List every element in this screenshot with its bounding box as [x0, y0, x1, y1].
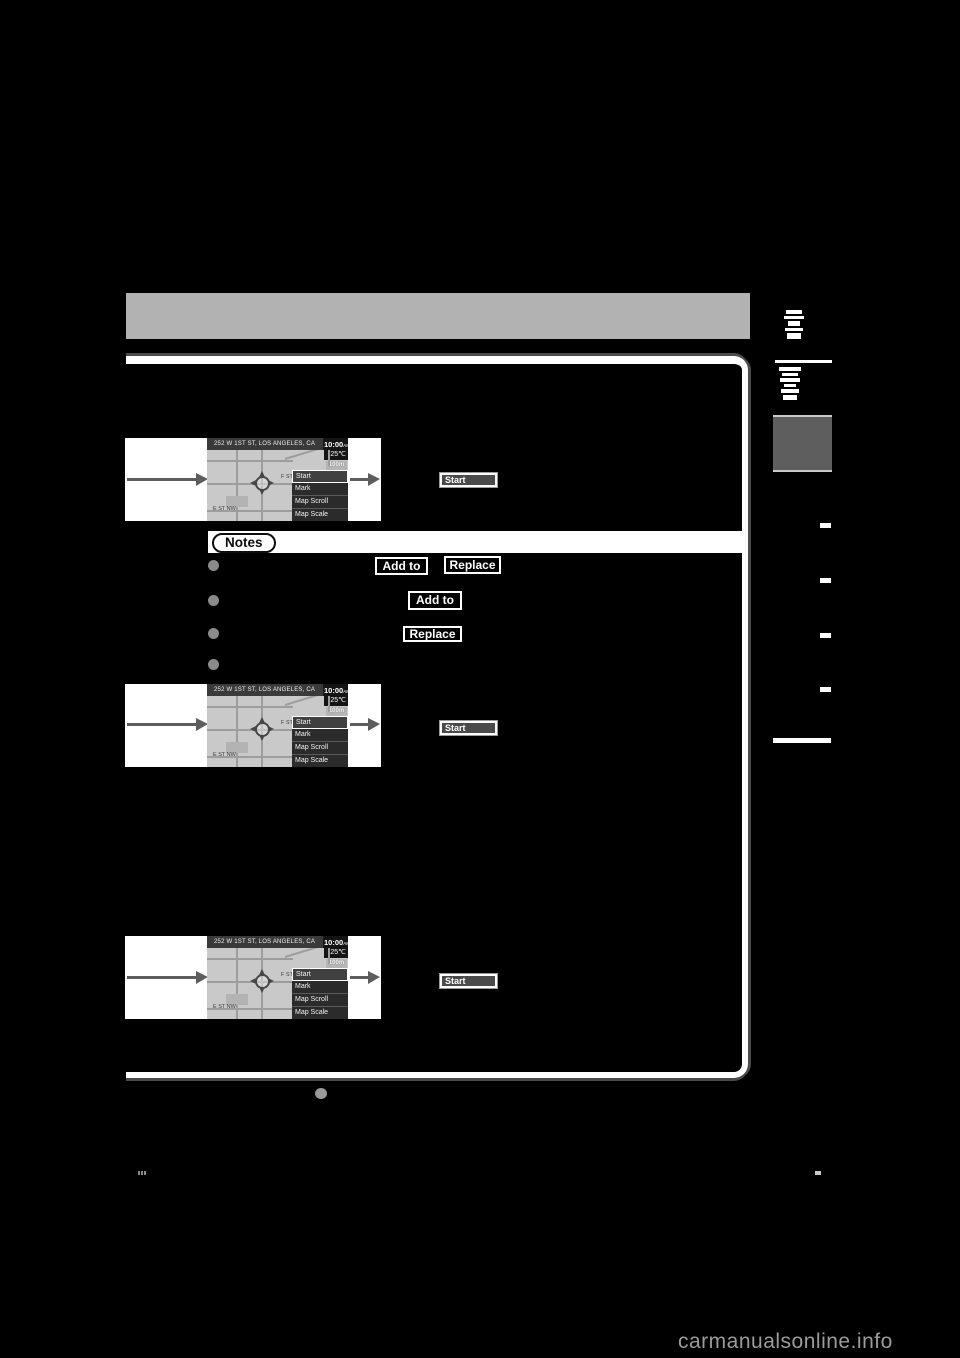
bullet-icon [208, 628, 219, 639]
map-area: F ST E ST NW Start Mark Map Scroll Map S… [207, 948, 348, 1019]
page-header-bar [126, 293, 750, 339]
street-label: E ST NW [213, 1004, 236, 1010]
map-clock: 10:00AM [323, 684, 348, 696]
map-address-bar: 252 W 1ST ST, LOS ANGELES, CA [207, 684, 331, 696]
menu-item-map-scale[interactable]: Map Scale [292, 1007, 348, 1019]
bullet-icon [208, 659, 219, 670]
street-label: E ST NW [213, 752, 236, 758]
bullet-icon [208, 560, 219, 571]
flow-arrow-icon [350, 723, 369, 726]
notes-heading-band: Notes [208, 531, 746, 553]
menu-item-map-scale[interactable]: Map Scale [292, 755, 348, 767]
map-address-bar: 252 W 1ST ST, LOS ANGELES, CA [207, 936, 331, 948]
flow-arrow-icon [350, 976, 369, 979]
map-context-menu: Start Mark Map Scroll Map Scale [292, 968, 348, 1019]
index-mark [820, 523, 831, 528]
flow-arrow-icon [350, 478, 369, 481]
compass-icon [251, 718, 273, 740]
map-address-bar: 252 W 1ST ST, LOS ANGELES, CA [207, 438, 331, 450]
add-to-button[interactable]: Add to [408, 591, 462, 610]
compass-icon [251, 472, 273, 494]
menu-item-mark[interactable]: Mark [292, 483, 348, 496]
manual-page: 252 W 1ST ST, LOS ANGELES, CA 10:00AM 25… [0, 0, 960, 1358]
menu-item-start[interactable]: Start [292, 716, 348, 729]
flow-arrow-icon [127, 478, 197, 481]
flow-arrow-icon [127, 976, 197, 979]
menu-item-mark[interactable]: Mark [292, 729, 348, 742]
map-area: F ST E ST NW Start Mark Map Scroll Map S… [207, 696, 348, 767]
street-label: E ST NW [213, 506, 236, 512]
chapter-label-marks [775, 367, 805, 400]
replace-button[interactable]: Replace [403, 626, 462, 642]
menu-item-mark[interactable]: Mark [292, 981, 348, 994]
start-button[interactable]: Start [440, 473, 497, 487]
chapter-divider-line [775, 360, 832, 363]
add-to-button[interactable]: Add to [375, 557, 428, 575]
start-button[interactable]: Start [440, 974, 497, 988]
rail-separator-line [773, 738, 831, 743]
footer-mark [815, 1171, 821, 1175]
start-button[interactable]: Start [440, 721, 497, 735]
nav-screen-screenshot: 252 W 1ST ST, LOS ANGELES, CA 10:00AM 25… [207, 438, 348, 521]
watermark-text: carmanualsonline.info [678, 1330, 893, 1354]
page-marker-dot [315, 1088, 327, 1099]
replace-button[interactable]: Replace [444, 556, 501, 574]
menu-item-map-scroll[interactable]: Map Scroll [292, 994, 348, 1007]
map-context-menu: Start Mark Map Scroll Map Scale [292, 470, 348, 521]
nav-screen-screenshot: 252 W 1ST ST, LOS ANGELES, CA 10:00AM 25… [207, 936, 348, 1019]
flow-arrow-icon [127, 723, 197, 726]
nav-screen-screenshot: 252 W 1ST ST, LOS ANGELES, CA 10:00AM 25… [207, 684, 348, 767]
menu-item-map-scroll[interactable]: Map Scroll [292, 742, 348, 755]
menu-item-start[interactable]: Start [292, 968, 348, 981]
menu-item-map-scale[interactable]: Map Scale [292, 509, 348, 521]
menu-item-map-scroll[interactable]: Map Scroll [292, 496, 348, 509]
chapter-label-marks [783, 310, 805, 339]
compass-icon [251, 970, 273, 992]
index-mark [820, 633, 831, 638]
map-context-menu: Start Mark Map Scroll Map Scale [292, 716, 348, 767]
map-clock: 10:00AM [323, 936, 348, 948]
map-clock: 10:00AM [323, 438, 348, 450]
notes-title: Notes [212, 533, 276, 553]
menu-item-start[interactable]: Start [292, 470, 348, 483]
map-area: F ST E ST NW Start Mark Map Scroll Map S… [207, 450, 348, 521]
bullet-icon [208, 595, 219, 606]
index-mark [820, 687, 831, 692]
chapter-tab[interactable] [773, 415, 832, 472]
index-mark [820, 578, 831, 583]
footer-mark [138, 1171, 146, 1175]
